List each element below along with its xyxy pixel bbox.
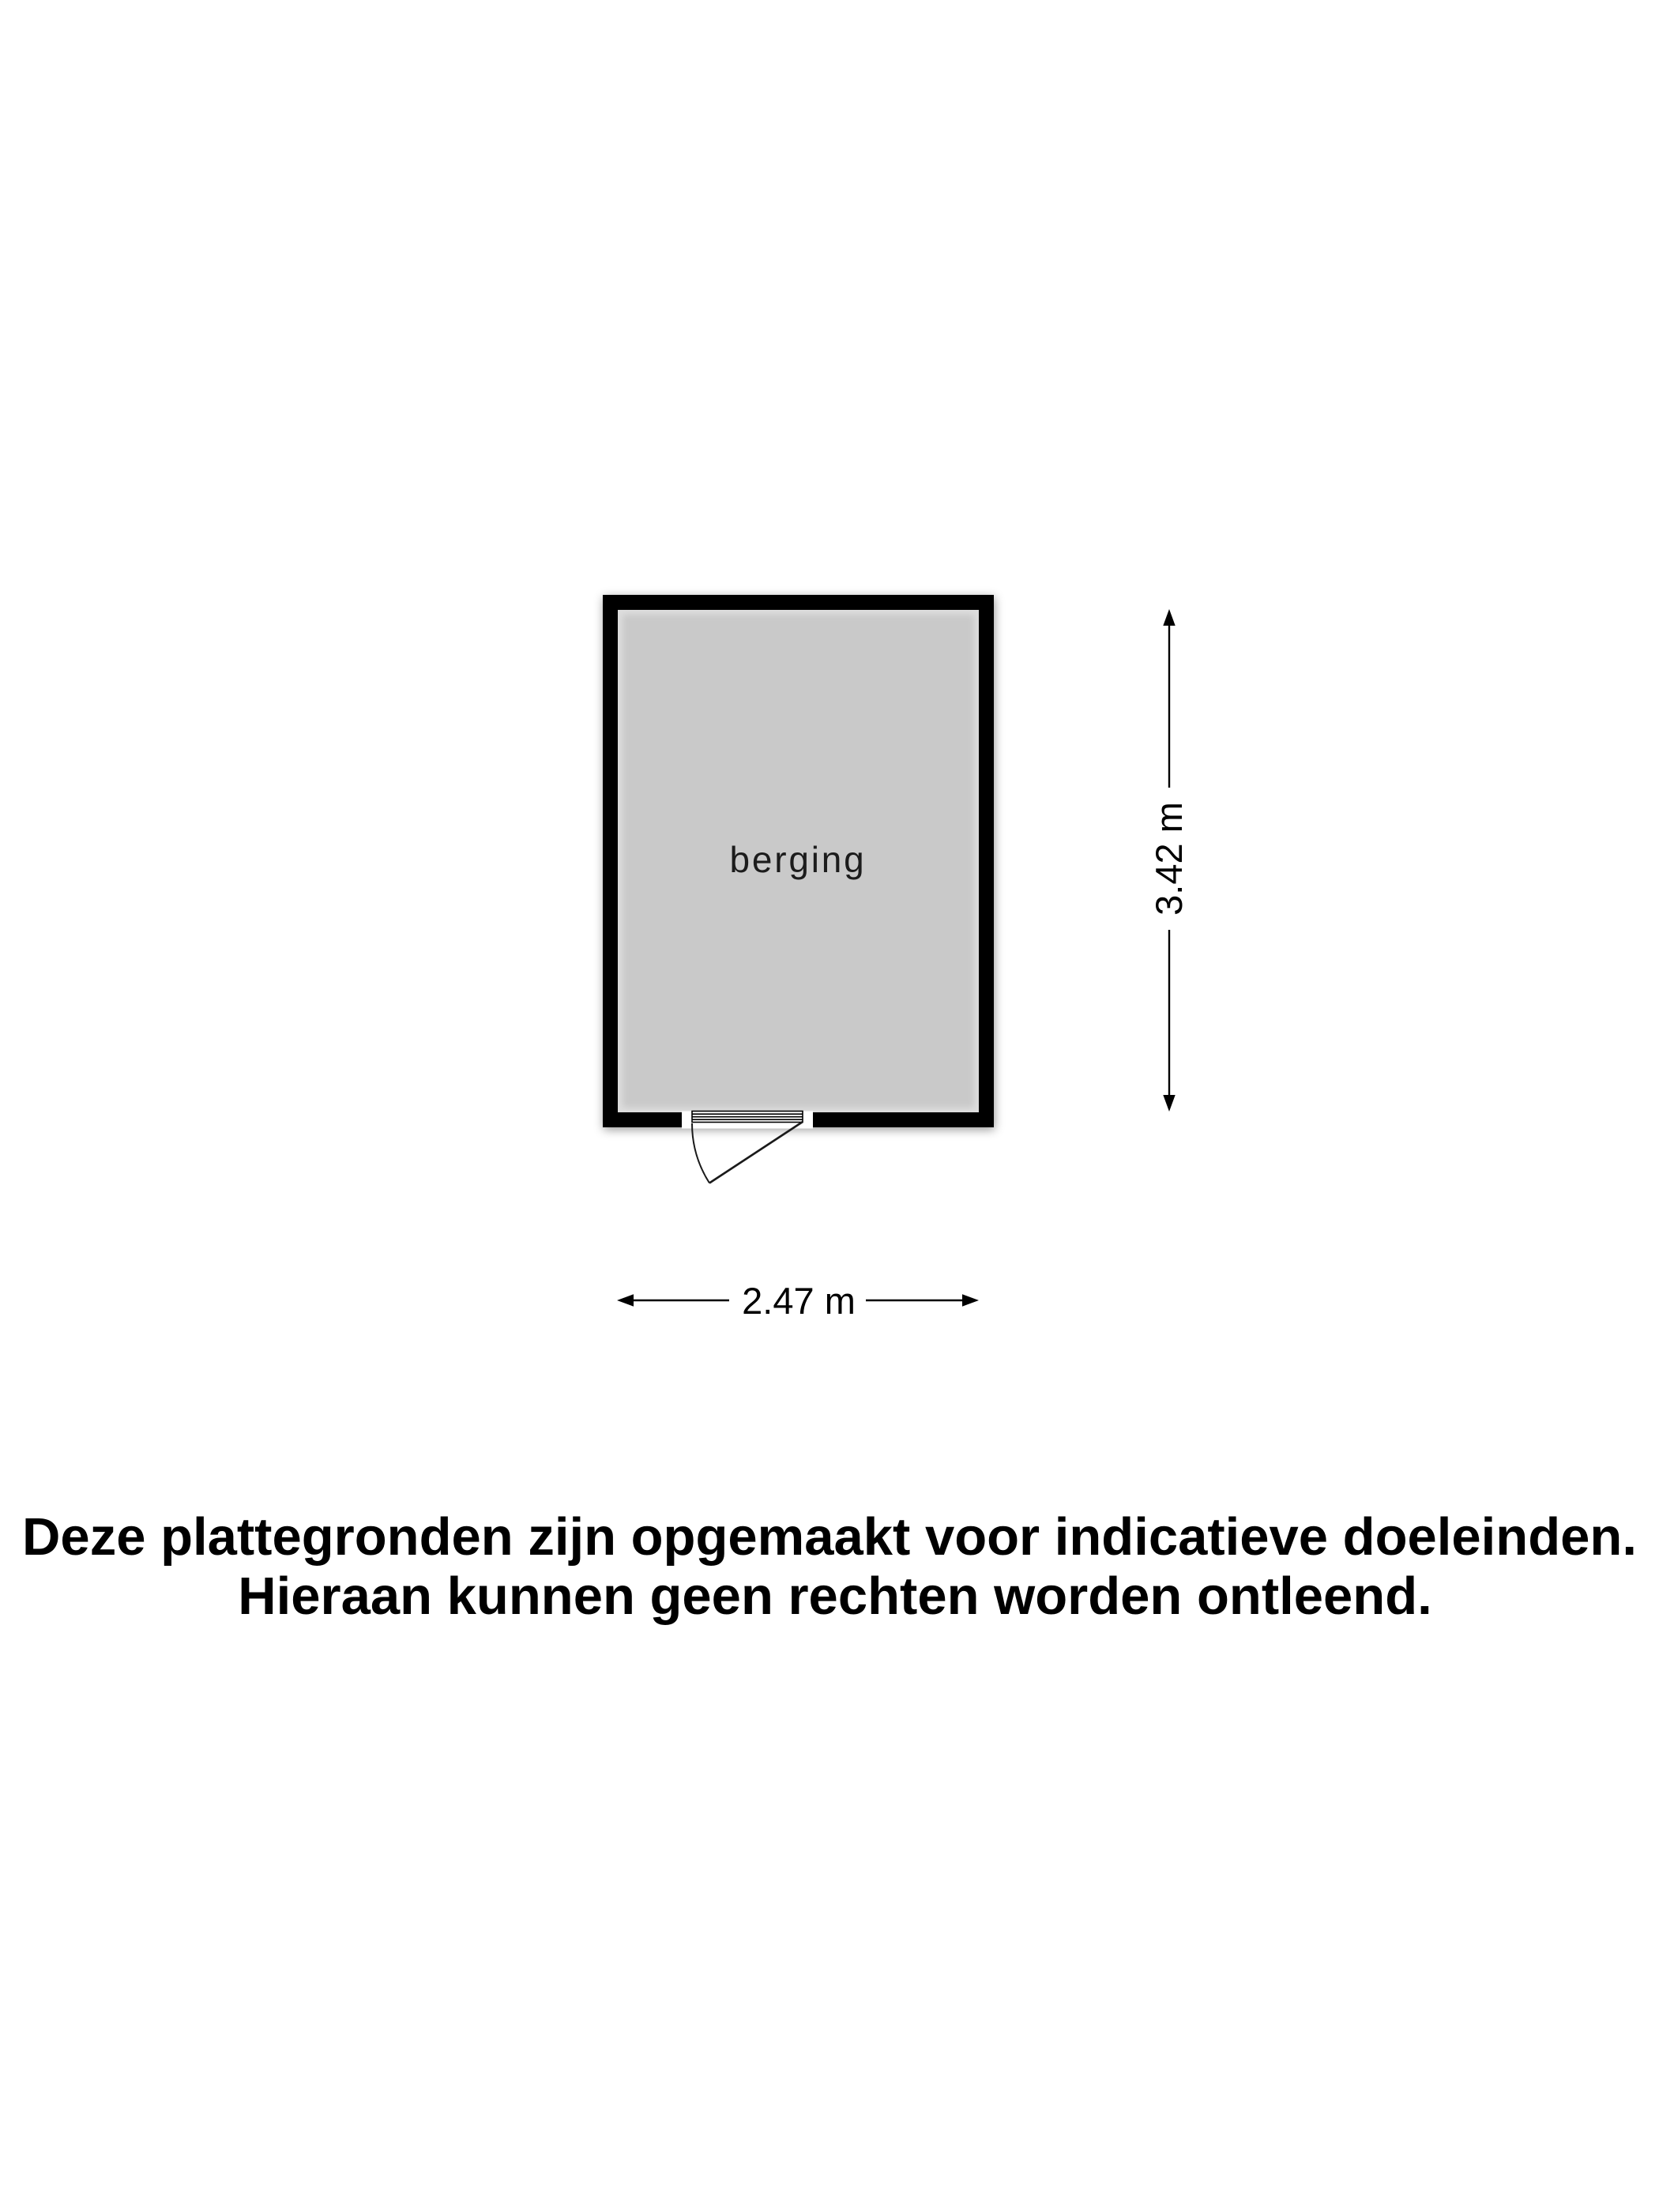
svg-text:Deze plattegronden zijn opgema: Deze plattegronden zijn opgemaakt voor i… xyxy=(22,1507,1637,1567)
svg-text:3.42 m: 3.42 m xyxy=(1148,802,1190,916)
svg-text:2.47 m: 2.47 m xyxy=(742,1280,856,1322)
svg-text:Hieraan kunnen geen rechten wo: Hieraan kunnen geen rechten worden ontle… xyxy=(238,1567,1432,1626)
svg-text:berging: berging xyxy=(729,839,866,880)
